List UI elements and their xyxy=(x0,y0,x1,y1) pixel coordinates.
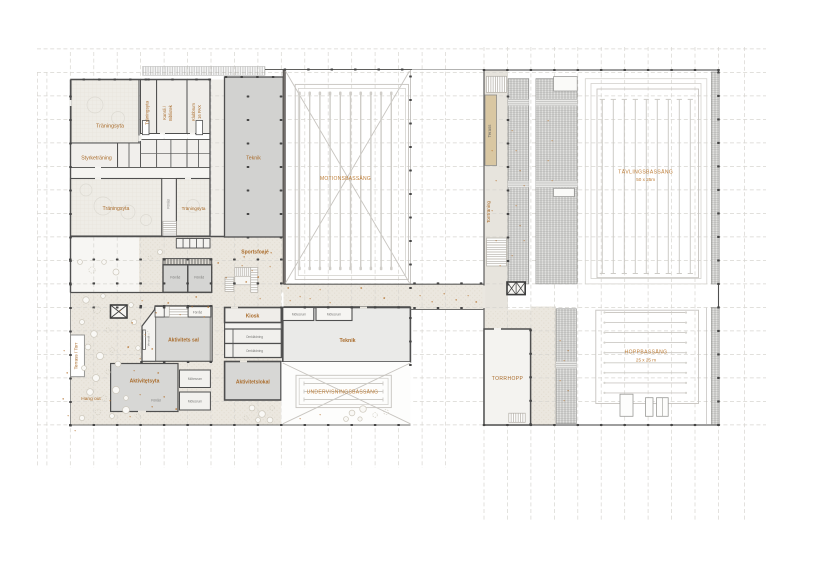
svg-text:Förråd: Förråd xyxy=(151,399,161,403)
svg-text:Terrass / Torr: Terrass / Torr xyxy=(74,342,79,369)
svg-text:Förråd: Förråd xyxy=(170,276,180,280)
svg-text:Torrträning: Torrträning xyxy=(486,201,491,223)
svg-text:Aktivitetslokal: Aktivitetslokal xyxy=(236,380,271,386)
svg-text:Aktivitetsyta: Aktivitetsyta xyxy=(130,379,160,385)
svg-text:Förråd: Förråd xyxy=(167,199,171,209)
svg-text:Träningsyta: Träningsyta xyxy=(182,206,206,211)
svg-text:Mötesrum: Mötesrum xyxy=(327,313,342,317)
svg-text:TÄVLINGSBASSÄNG: TÄVLINGSBASSÄNG xyxy=(618,169,673,176)
svg-text:UNDERVISNINGSBASSÄNG: UNDERVISNINGSBASSÄNG xyxy=(307,389,379,396)
svg-text:Kiosk: Kiosk xyxy=(246,314,260,320)
svg-text:Mötesrum: Mötesrum xyxy=(188,400,203,404)
svg-text:Mötesrum: Mötesrum xyxy=(292,313,307,317)
svg-text:Klubbrum: Klubbrum xyxy=(191,103,196,121)
svg-text:Bibliotek: Bibliotek xyxy=(168,104,173,121)
svg-text:Teknik: Teknik xyxy=(339,338,355,344)
svg-text:Förråd: Förråd xyxy=(193,311,203,315)
svg-text:25 x 25 m: 25 x 25 m xyxy=(636,358,656,363)
svg-text:Sportsfoajé: Sportsfoajé xyxy=(241,250,269,256)
svg-text:Kansli /: Kansli / xyxy=(162,105,167,120)
svg-text:TORRHOPP: TORRHOPP xyxy=(492,376,524,382)
svg-text:Aktivitets sal: Aktivitets sal xyxy=(168,338,199,344)
svg-text:HOPPBASSÄNG: HOPPBASSÄNG xyxy=(625,349,668,356)
svg-text:Mötesrum: Mötesrum xyxy=(188,377,203,381)
svg-text:16 PAX: 16 PAX xyxy=(197,105,202,119)
svg-text:Träningsyta: Träningsyta xyxy=(145,101,150,125)
svg-text:MOTIONSBASSÄNG: MOTIONSBASSÄNG xyxy=(320,175,371,182)
svg-text:Träningsyta: Träningsyta xyxy=(96,124,124,130)
svg-text:50 x 25m: 50 x 25m xyxy=(636,177,655,182)
svg-text:Omklädning: Omklädning xyxy=(246,335,263,339)
svg-text:Träningsyta: Träningsyta xyxy=(103,206,130,212)
svg-text:Teknik: Teknik xyxy=(246,156,261,162)
svg-text:Styrketräning: Styrketräning xyxy=(81,156,112,162)
svg-text:Terass: Terass xyxy=(487,124,492,138)
svg-text:Veranda: Veranda xyxy=(147,335,151,346)
svg-text:Omklädning: Omklädning xyxy=(246,349,263,353)
svg-text:Hang out: Hang out xyxy=(81,396,101,402)
svg-text:Förråd: Förråd xyxy=(194,276,204,280)
